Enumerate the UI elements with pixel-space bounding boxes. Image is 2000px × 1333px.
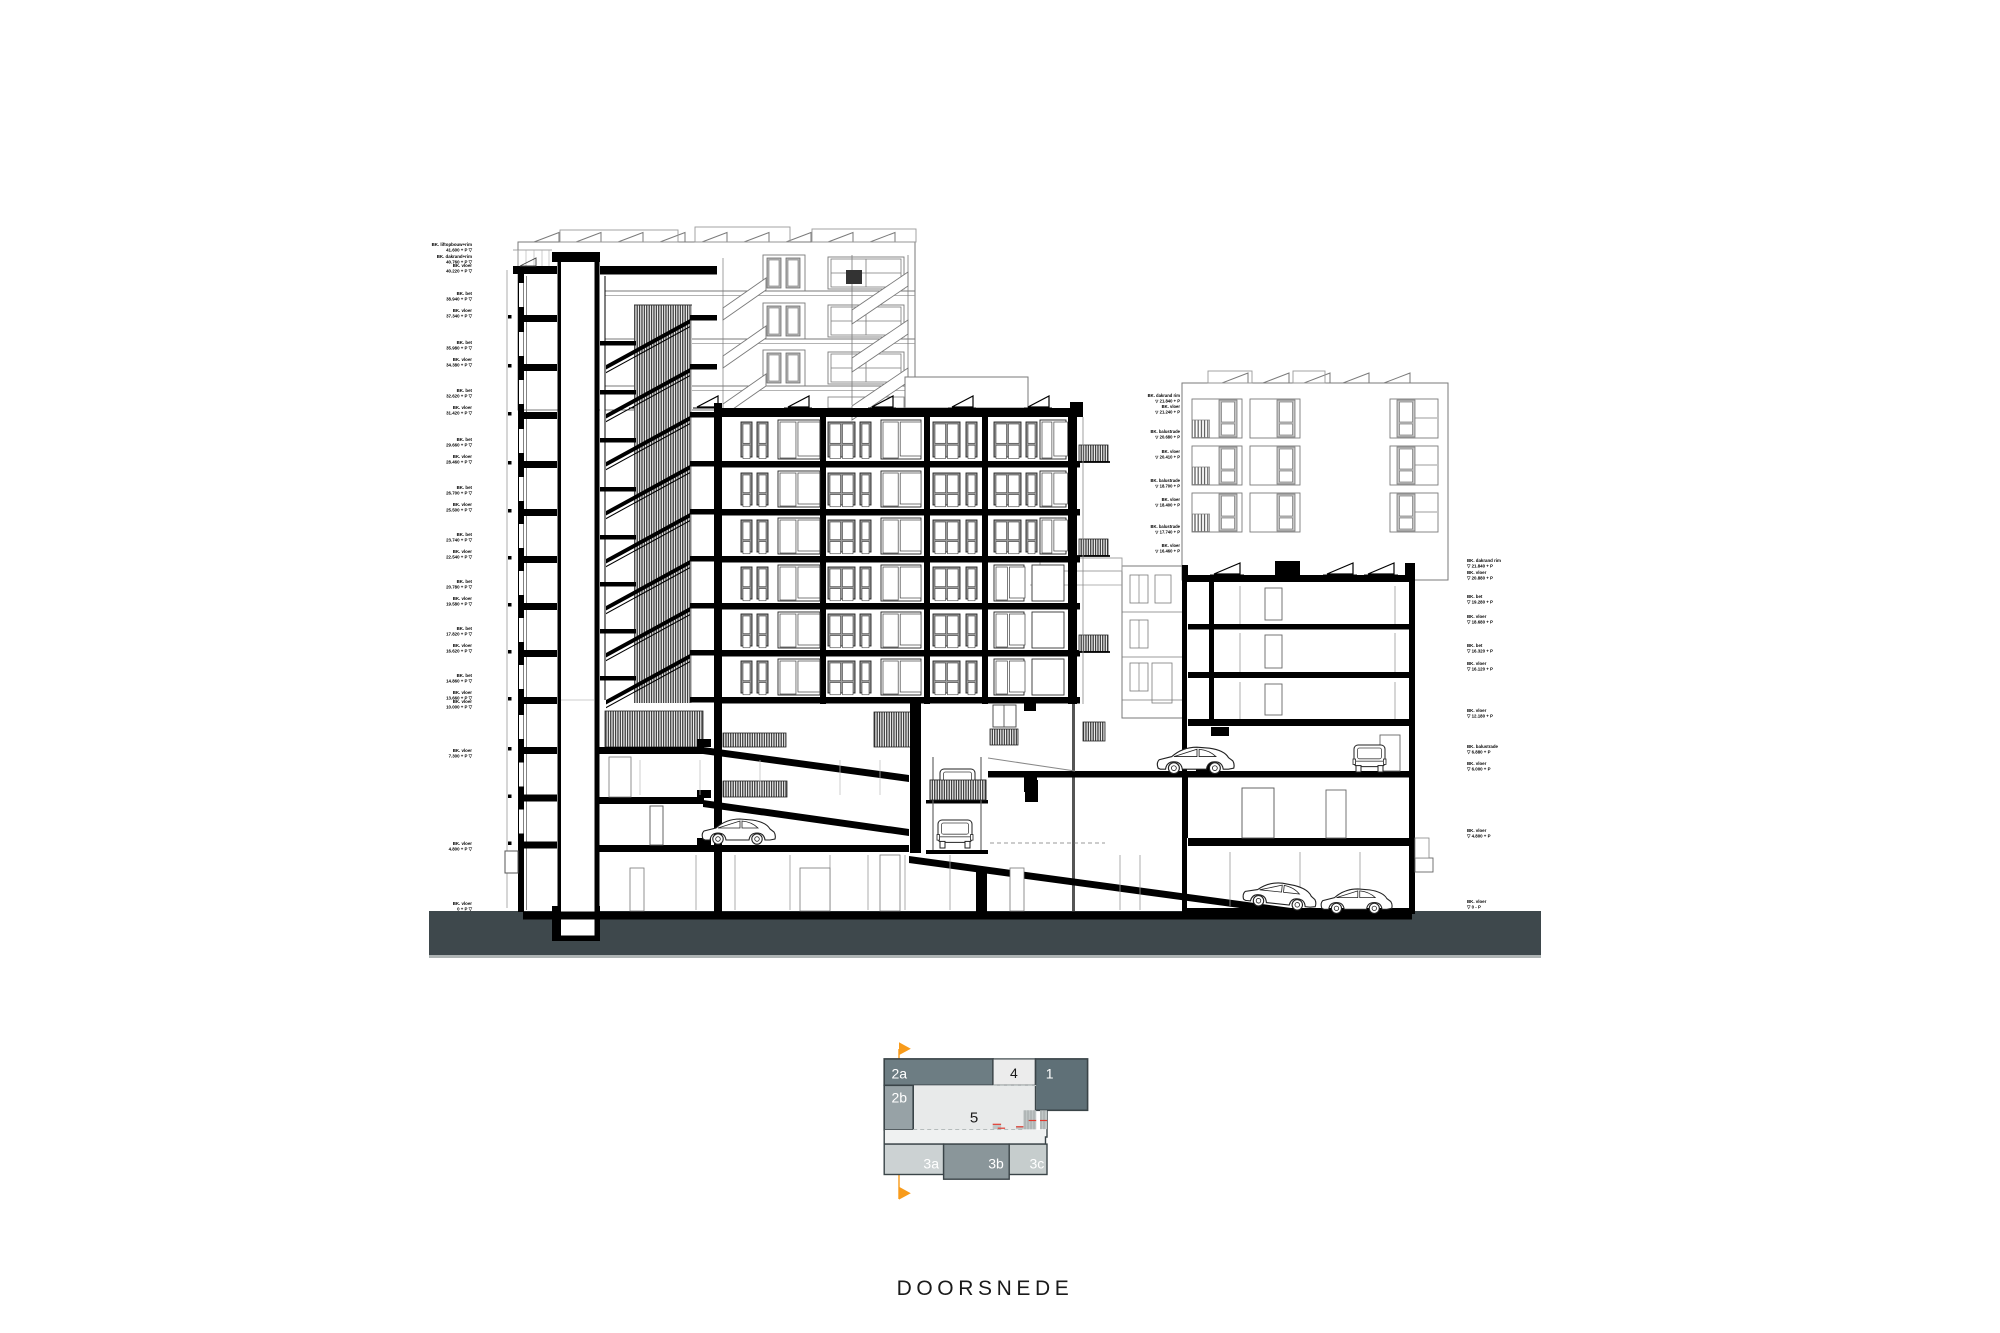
svg-text:BK. vloer: BK. vloer	[1467, 761, 1487, 766]
svg-text:26.700 + P ▽: 26.700 + P ▽	[446, 491, 473, 496]
svg-text:7.300 + P ▽: 7.300 + P ▽	[449, 754, 473, 759]
svg-text:20.780 + P ▽: 20.780 + P ▽	[446, 585, 473, 590]
svg-text:41.600 + P ▽: 41.600 + P ▽	[446, 248, 473, 253]
svg-text:5: 5	[970, 1109, 978, 1126]
svg-text:▽ 18.400 + P: ▽ 18.400 + P	[1154, 502, 1180, 507]
svg-text:BK. bet: BK. bet	[457, 437, 473, 442]
svg-text:▽ 20.880 + P: ▽ 20.880 + P	[1466, 576, 1493, 581]
svg-text:BK. vloer: BK. vloer	[453, 454, 473, 459]
svg-text:▽ 20.680 + P: ▽ 20.680 + P	[1154, 434, 1180, 439]
svg-text:▽ 6.000 + P: ▽ 6.000 + P	[1466, 767, 1491, 772]
svg-text:BK. vloer: BK. vloer	[1467, 828, 1487, 833]
svg-text:0 + P ▽: 0 + P ▽	[457, 907, 473, 912]
svg-text:BK. vloer: BK. vloer	[453, 643, 473, 648]
svg-text:▽ 18.700 + P: ▽ 18.700 + P	[1154, 483, 1180, 488]
svg-text:BK. vloer: BK. vloer	[453, 357, 473, 362]
svg-text:14.860 + P ▽: 14.860 + P ▽	[446, 679, 473, 684]
svg-text:2b: 2b	[892, 1090, 908, 1106]
svg-text:BK. vloer: BK. vloer	[453, 405, 473, 410]
svg-text:BK. bet: BK. bet	[1467, 643, 1483, 648]
svg-text:BK. vloer: BK. vloer	[1467, 661, 1487, 666]
svg-text:BK. bet: BK. bet	[1467, 594, 1483, 599]
svg-text:22.540 + P ▽: 22.540 + P ▽	[446, 555, 473, 560]
svg-text:3a: 3a	[923, 1155, 939, 1171]
svg-text:BK. vloer: BK. vloer	[453, 690, 473, 695]
svg-text:BK. bet: BK. bet	[457, 485, 473, 490]
svg-text:BK. dakrand+rim: BK. dakrand+rim	[437, 254, 472, 259]
svg-text:▽ 18.680 + P: ▽ 18.680 + P	[1466, 620, 1493, 625]
svg-text:35.980 + P ▽: 35.980 + P ▽	[446, 346, 473, 351]
svg-text:BK. vloer: BK. vloer	[1162, 543, 1181, 548]
svg-text:▽ 20.410 + P: ▽ 20.410 + P	[1154, 454, 1180, 459]
svg-text:BK. vloer: BK. vloer	[453, 841, 473, 846]
svg-text:▽ 16.120 + P: ▽ 16.120 + P	[1466, 667, 1493, 672]
svg-text:BK. vloer: BK. vloer	[453, 502, 473, 507]
svg-text:BK. bet: BK. bet	[457, 673, 473, 678]
svg-text:BK. balustrade: BK. balustrade	[1467, 744, 1499, 749]
svg-text:▽ 16.320 + P: ▽ 16.320 + P	[1466, 649, 1493, 654]
svg-text:10.000 + P ▽: 10.000 + P ▽	[446, 705, 473, 710]
svg-text:17.820 + P ▽: 17.820 + P ▽	[446, 632, 473, 637]
svg-text:▽ 16.460 + P: ▽ 16.460 + P	[1154, 548, 1180, 553]
svg-text:3c: 3c	[1030, 1155, 1045, 1171]
svg-text:▽ 21.840 + P: ▽ 21.840 + P	[1154, 398, 1180, 403]
svg-text:BK. vloer: BK. vloer	[1467, 708, 1487, 713]
svg-text:BK. dakrand rim: BK. dakrand rim	[1467, 558, 1501, 563]
svg-text:BK. vloer: BK. vloer	[453, 549, 473, 554]
svg-text:25.500 + P ▽: 25.500 + P ▽	[446, 508, 473, 513]
svg-text:▽ 21.240 + P: ▽ 21.240 + P	[1154, 409, 1180, 414]
svg-text:3b: 3b	[988, 1155, 1004, 1171]
svg-text:BK. vloer: BK. vloer	[453, 596, 473, 601]
svg-text:▽ 21.840 + P: ▽ 21.840 + P	[1466, 564, 1493, 569]
svg-text:BK. vloer: BK. vloer	[1162, 404, 1181, 409]
svg-text:BK. liftopbouw+rim: BK. liftopbouw+rim	[432, 242, 472, 247]
svg-text:▽ 0 - P: ▽ 0 - P	[1466, 905, 1481, 910]
svg-text:32.620 + P ▽: 32.620 + P ▽	[446, 394, 473, 399]
svg-text:29.660 + P ▽: 29.660 + P ▽	[446, 443, 473, 448]
svg-text:38.940 + P ▽: 38.940 + P ▽	[446, 297, 473, 302]
svg-text:▽ 6.880 + P: ▽ 6.880 + P	[1466, 750, 1491, 755]
svg-text:37.340 + P ▽: 37.340 + P ▽	[446, 314, 473, 319]
svg-text:23.740 + P ▽: 23.740 + P ▽	[446, 538, 473, 543]
svg-text:BK. vloer: BK. vloer	[453, 748, 473, 753]
svg-text:BK. bet: BK. bet	[457, 626, 473, 631]
svg-text:BK. vloer: BK. vloer	[1162, 497, 1181, 502]
svg-text:BK. vloer: BK. vloer	[1467, 899, 1487, 904]
svg-text:4.800 + P ▽: 4.800 + P ▽	[449, 847, 473, 852]
svg-text:BK. bet: BK. bet	[457, 340, 473, 345]
svg-text:2a: 2a	[892, 1066, 908, 1082]
svg-text:16.620 + P ▽: 16.620 + P ▽	[446, 649, 473, 654]
svg-text:40.220 + P ▽: 40.220 + P ▽	[446, 269, 473, 274]
svg-text:▽ 19.280 + P: ▽ 19.280 + P	[1466, 600, 1493, 605]
svg-text:34.380 + P ▽: 34.380 + P ▽	[446, 363, 473, 368]
svg-text:BK. vloer: BK. vloer	[453, 901, 473, 906]
svg-text:BK. balustrade: BK. balustrade	[1150, 524, 1180, 529]
svg-text:28.460 + P ▽: 28.460 + P ▽	[446, 460, 473, 465]
svg-text:BK. vloer: BK. vloer	[1467, 614, 1487, 619]
svg-text:▽ 4.800 + P: ▽ 4.800 + P	[1466, 834, 1491, 839]
svg-text:▽ 17.740 + P: ▽ 17.740 + P	[1154, 529, 1180, 534]
svg-text:DOORSNEDE: DOORSNEDE	[897, 1277, 1074, 1300]
svg-text:4: 4	[1010, 1065, 1018, 1081]
svg-text:BK. vloer: BK. vloer	[1162, 449, 1181, 454]
svg-text:BK. bet: BK. bet	[457, 388, 473, 393]
svg-text:BK. bet: BK. bet	[457, 579, 473, 584]
svg-text:▽ 12.180 + P: ▽ 12.180 + P	[1466, 714, 1493, 719]
svg-text:BK. balustrade: BK. balustrade	[1150, 429, 1180, 434]
svg-text:19.580 + P ▽: 19.580 + P ▽	[446, 602, 473, 607]
svg-text:BK. bet: BK. bet	[457, 291, 473, 296]
svg-text:BK. balustrade: BK. balustrade	[1150, 478, 1180, 483]
svg-text:BK. vloer: BK. vloer	[453, 263, 473, 268]
svg-text:BK. bet: BK. bet	[457, 532, 473, 537]
svg-text:BK. vloer: BK. vloer	[453, 699, 473, 704]
svg-text:31.420 + P ▽: 31.420 + P ▽	[446, 411, 473, 416]
svg-text:BK. vloer: BK. vloer	[1467, 570, 1487, 575]
svg-text:BK. vloer: BK. vloer	[453, 308, 473, 313]
svg-text:BK. dakrand rim: BK. dakrand rim	[1148, 393, 1181, 398]
svg-text:1: 1	[1046, 1066, 1054, 1082]
